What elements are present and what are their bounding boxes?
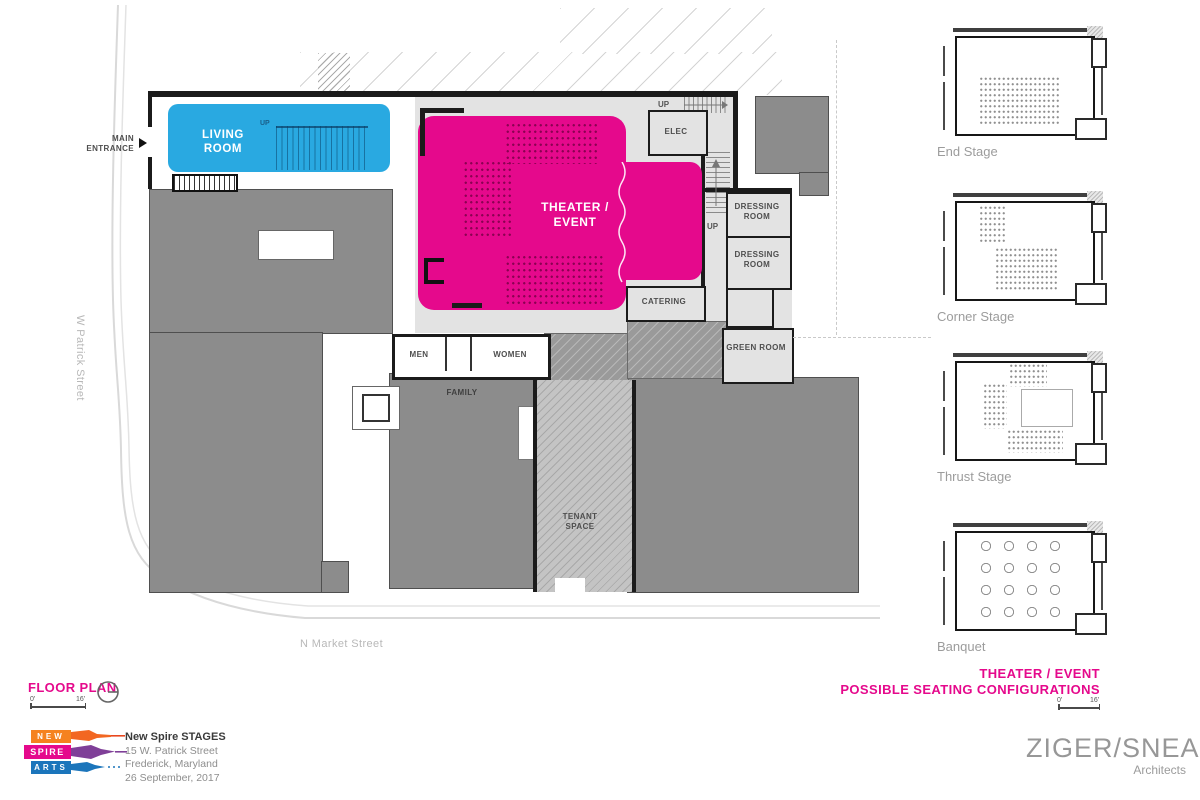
mini-wall — [943, 247, 945, 295]
corner-stage-seating-small — [979, 205, 1005, 245]
logo-bar-new: NEW — [31, 730, 71, 743]
tenant-space-area — [533, 380, 636, 592]
new-spire-arts-logo: NEW SPIRE ARTS — [24, 728, 134, 776]
mini-wall — [1101, 385, 1103, 440]
config-panel-end-stage: End Stage — [935, 20, 1105, 180]
living-room-stairs — [276, 126, 368, 170]
men-label: MEN — [396, 350, 442, 360]
tenant-door-gap — [555, 578, 585, 592]
mini-wall — [943, 541, 945, 571]
mini-side-room — [1075, 613, 1107, 635]
project-city: Frederick, Maryland — [125, 758, 226, 772]
corner-stage-seating-large — [995, 247, 1059, 291]
street-label-west: W Patrick Street — [74, 315, 86, 401]
street-label-south: N Market Street — [300, 638, 383, 650]
end-stage-seating — [979, 76, 1061, 126]
theater-seats-top — [505, 122, 600, 164]
restroom-divider-2 — [470, 337, 472, 371]
mini-side-room — [1075, 443, 1107, 465]
dashed-property-line-h — [793, 337, 931, 338]
building-mass-right — [628, 378, 858, 592]
logo-spires-icon — [71, 728, 133, 776]
mini-wall — [1101, 225, 1103, 280]
config-label: Banquet — [937, 639, 985, 654]
config-label: Thrust Stage — [937, 469, 1011, 484]
stage-wall-bottom — [452, 303, 482, 308]
building-mass-left-upper — [150, 190, 392, 333]
green-room — [722, 328, 794, 384]
project-info: New Spire STAGES 15 W. Patrick Street Fr… — [125, 731, 226, 785]
right-stair-up-label: UP — [707, 222, 718, 231]
thrust-seating-left — [983, 383, 1007, 429]
elec-label: ELEC — [652, 127, 700, 137]
mini-wall — [943, 82, 945, 130]
firm-tagline: Architects — [1026, 763, 1186, 777]
theater-seats-side — [463, 160, 513, 238]
courtyard-cutout — [258, 230, 334, 260]
living-room-label: LIVING ROOM — [186, 128, 260, 156]
mini-side-room — [1091, 203, 1107, 233]
config-panel-corner-stage: Corner Stage — [935, 185, 1105, 345]
hatch-dense-block — [318, 53, 350, 95]
mini-side-room — [1091, 363, 1107, 393]
north-arrow-icon — [96, 679, 122, 705]
family-label: FAMILY — [436, 388, 488, 398]
hatch-area-top — [300, 52, 782, 95]
thrust-seating-bottom — [1007, 429, 1063, 453]
config-label: End Stage — [937, 144, 998, 159]
mini-wall — [1101, 60, 1103, 115]
hatch-zone-b — [628, 322, 733, 378]
config-panel-thrust-stage: Thrust Stage — [935, 345, 1105, 505]
config-heading-line1: THEATER / EVENT — [780, 666, 1100, 681]
mini-side-room — [1075, 283, 1107, 305]
dressing-room-2-label: DRESSING ROOM — [729, 250, 785, 270]
plan-scale-end: 16' — [76, 696, 85, 703]
entry-stair-strip — [172, 174, 238, 192]
building-mass-topright-leg — [800, 173, 828, 195]
wall-top — [148, 91, 738, 97]
thrust-seating-top — [1009, 363, 1047, 387]
building-mass-step — [322, 562, 348, 592]
mini-wall — [943, 46, 945, 76]
mini-side-room — [1075, 118, 1107, 140]
top-stair-arrow — [682, 100, 730, 110]
thrust-stage-platform — [1021, 389, 1073, 427]
project-address: 15 W. Patrick Street — [125, 745, 226, 759]
logo-bar-spire: SPIRE — [24, 745, 71, 759]
hatch-area-top2 — [560, 8, 772, 54]
theater-seats-bottom — [505, 254, 605, 304]
wall-left-lower — [148, 157, 152, 189]
mini-outer-wall — [953, 353, 1103, 357]
main-entrance-label: MAIN ENTRANCE — [84, 134, 134, 154]
mini-side-room — [1091, 38, 1107, 68]
stage-pocket — [424, 258, 444, 284]
config-heading-line2: POSSIBLE SEATING CONFIGURATIONS — [780, 682, 1100, 697]
project-date: 26 September, 2017 — [125, 772, 226, 786]
top-stair-up-label: UP — [658, 100, 669, 109]
project-name: New Spire STAGES — [125, 731, 226, 745]
mini-wall — [1101, 555, 1103, 610]
config-scale-end: 16' — [1090, 697, 1099, 704]
sheet: W Patrick Street N Market Street TENANT … — [0, 0, 1200, 800]
catering-label: CATERING — [630, 297, 698, 307]
wall-right-top — [733, 91, 738, 191]
mini-wall — [943, 371, 945, 401]
logo-bar-arts: ARTS — [31, 761, 71, 774]
firm-logo: ZIGER/SNEAD — [1026, 733, 1186, 764]
living-room-up-label: UP — [260, 120, 270, 127]
banquet-tables — [975, 535, 1067, 623]
config-scale-start: 0' — [1057, 697, 1062, 704]
mini-wall — [943, 407, 945, 455]
restroom-divider-1 — [445, 337, 447, 371]
women-label: WOMEN — [478, 350, 542, 360]
proscenium-wall-h — [420, 108, 464, 113]
main-entrance-arrow-icon — [139, 138, 147, 148]
plan-scale-start: 0' — [30, 696, 35, 703]
building-mass-left-lower — [150, 333, 322, 592]
toilet-room — [726, 288, 774, 328]
plan-scale-bar — [30, 706, 86, 708]
right-stair-arrow — [710, 158, 722, 208]
config-label: Corner Stage — [937, 309, 1014, 324]
elevator-cab — [362, 394, 390, 422]
mini-side-room — [1091, 533, 1107, 563]
mini-wall — [943, 211, 945, 241]
mini-outer-wall — [953, 28, 1103, 32]
building-mass-center — [390, 374, 533, 588]
green-room-label: GREEN ROOM — [726, 343, 786, 353]
config-scale-bar — [1058, 707, 1100, 709]
theater-event-label: THEATER / EVENT — [530, 200, 620, 230]
wall-left-upper — [148, 97, 152, 127]
mini-wall — [943, 577, 945, 625]
building-mass-topright — [756, 97, 828, 173]
dressing-room-1-label: DRESSING ROOM — [729, 202, 785, 222]
tenant-space-label: TENANT SPACE — [548, 512, 612, 532]
mini-outer-wall — [953, 523, 1103, 527]
proscenium-wall-v — [420, 108, 425, 156]
mini-outer-wall — [953, 193, 1103, 197]
hatch-zone-a — [545, 334, 628, 380]
config-panel-banquet: Banquet — [935, 515, 1105, 675]
dashed-property-line-v — [836, 40, 837, 335]
